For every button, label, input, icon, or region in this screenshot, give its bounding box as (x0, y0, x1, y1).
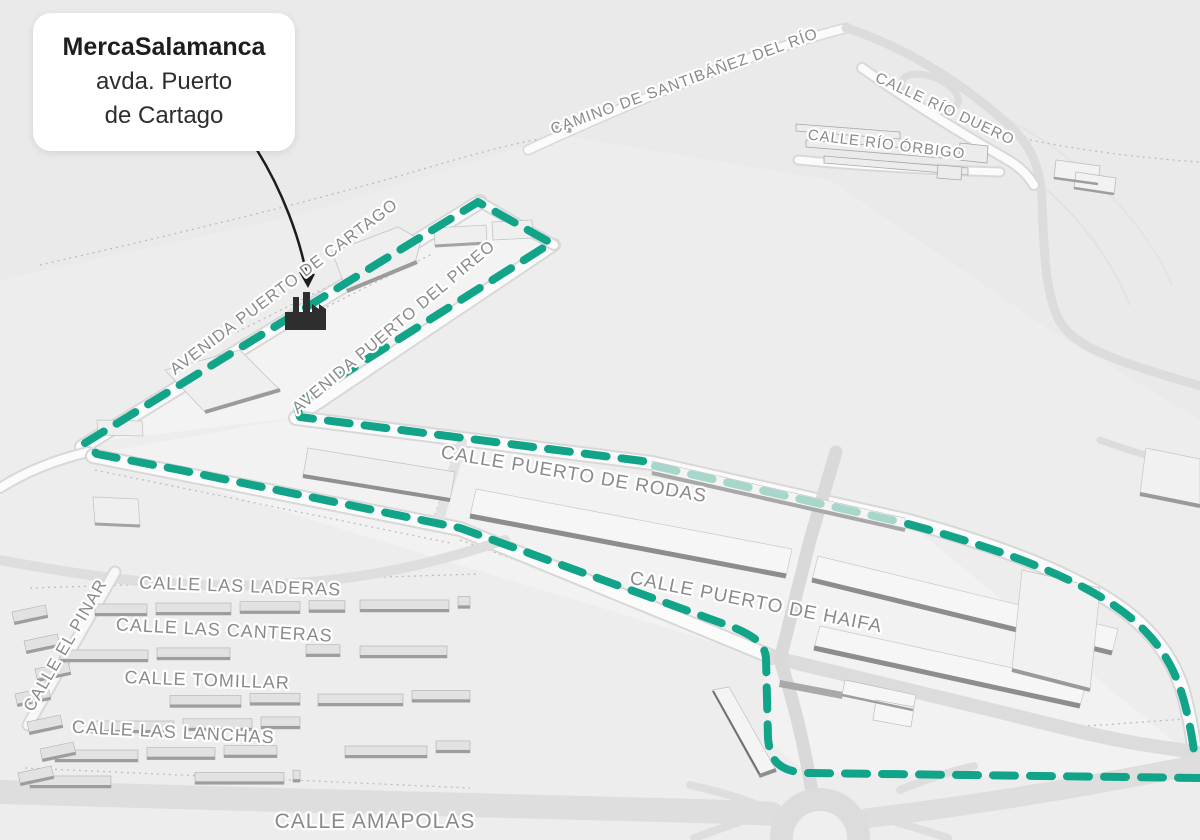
callout-address-line1: avda. Puerto (55, 65, 273, 99)
street-label-calle-amapolas: CALLE AMAPOLAS (275, 810, 476, 833)
location-callout: MercaSalamanca avda. Puerto de Cartago (33, 13, 295, 151)
callout-address-line2: de Cartago (55, 99, 273, 133)
map-canvas[interactable]: CAMINO DE SANTIBÁÑEZ DEL RÍO CALLE RÍO D… (0, 0, 1200, 840)
callout-title: MercaSalamanca (55, 29, 273, 65)
